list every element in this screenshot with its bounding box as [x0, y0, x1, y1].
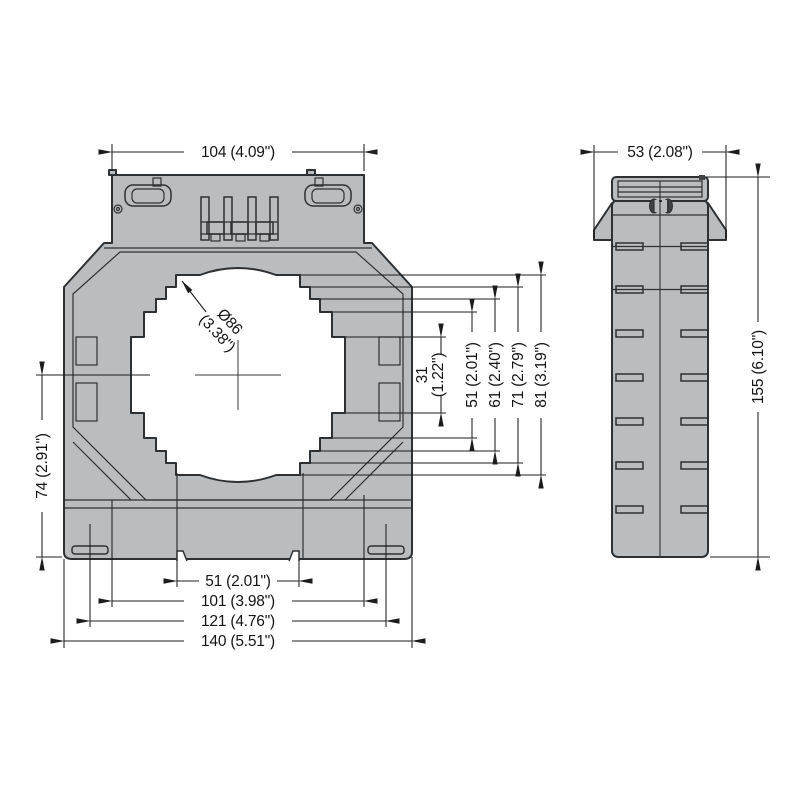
dim-seam-span-label: 101 (3.98") [201, 593, 275, 610]
dim-top-width: 104 (4.09") [112, 144, 364, 171]
dim-step-61-label: 61 (2.40") [487, 342, 504, 408]
dim-seam-span: 101 (3.98") [112, 593, 364, 610]
dim-step-61: 61 (2.40") [487, 299, 504, 451]
dim-step-31: 31 (1.22") [414, 337, 447, 413]
dim-step-31-label-2: (1.22") [430, 353, 447, 398]
dim-side-width-label: 53 (2.08") [627, 144, 693, 161]
front-view [64, 170, 412, 561]
technical-drawing-page: 104 (4.09") Ø86 (3.38") 31 (1.22") 51 (2… [0, 0, 800, 800]
dim-top-width-label: 104 (4.09") [201, 144, 275, 161]
dim-notch-span: 51 (2.01") [177, 573, 299, 590]
dim-overall-width: 140 (5.51") [64, 633, 412, 650]
dim-step-51: 51 (2.01") [464, 312, 481, 438]
dim-slot-span: 121 (4.76") [90, 613, 386, 630]
dim-overall-width-label: 140 (5.51") [201, 633, 275, 650]
dim-center-to-base-label: 74 (2.91") [34, 433, 51, 499]
side-view [594, 175, 726, 557]
cap-mold-mark-right [307, 170, 315, 175]
dim-step-81-label: 81 (3.19") [533, 342, 550, 408]
dim-step-81: 81 (3.19") [533, 275, 550, 475]
dim-step-71-label: 71 (2.79") [510, 342, 527, 408]
dim-step-51-label: 51 (2.01") [464, 342, 481, 408]
dim-slot-span-label: 121 (4.76") [201, 613, 275, 630]
cap-corner-mark [699, 175, 705, 180]
dim-step-31-label-1: 31 [414, 367, 431, 384]
dim-notch-span-label: 51 (2.01") [205, 573, 271, 590]
dim-step-71: 71 (2.79") [510, 287, 527, 463]
ct-dimension-drawing: 104 (4.09") Ø86 (3.38") 31 (1.22") 51 (2… [0, 0, 800, 800]
dim-overall-height-label: 155 (6.10") [750, 330, 767, 404]
side-wing-right [708, 203, 726, 240]
side-wing-left [594, 203, 612, 240]
